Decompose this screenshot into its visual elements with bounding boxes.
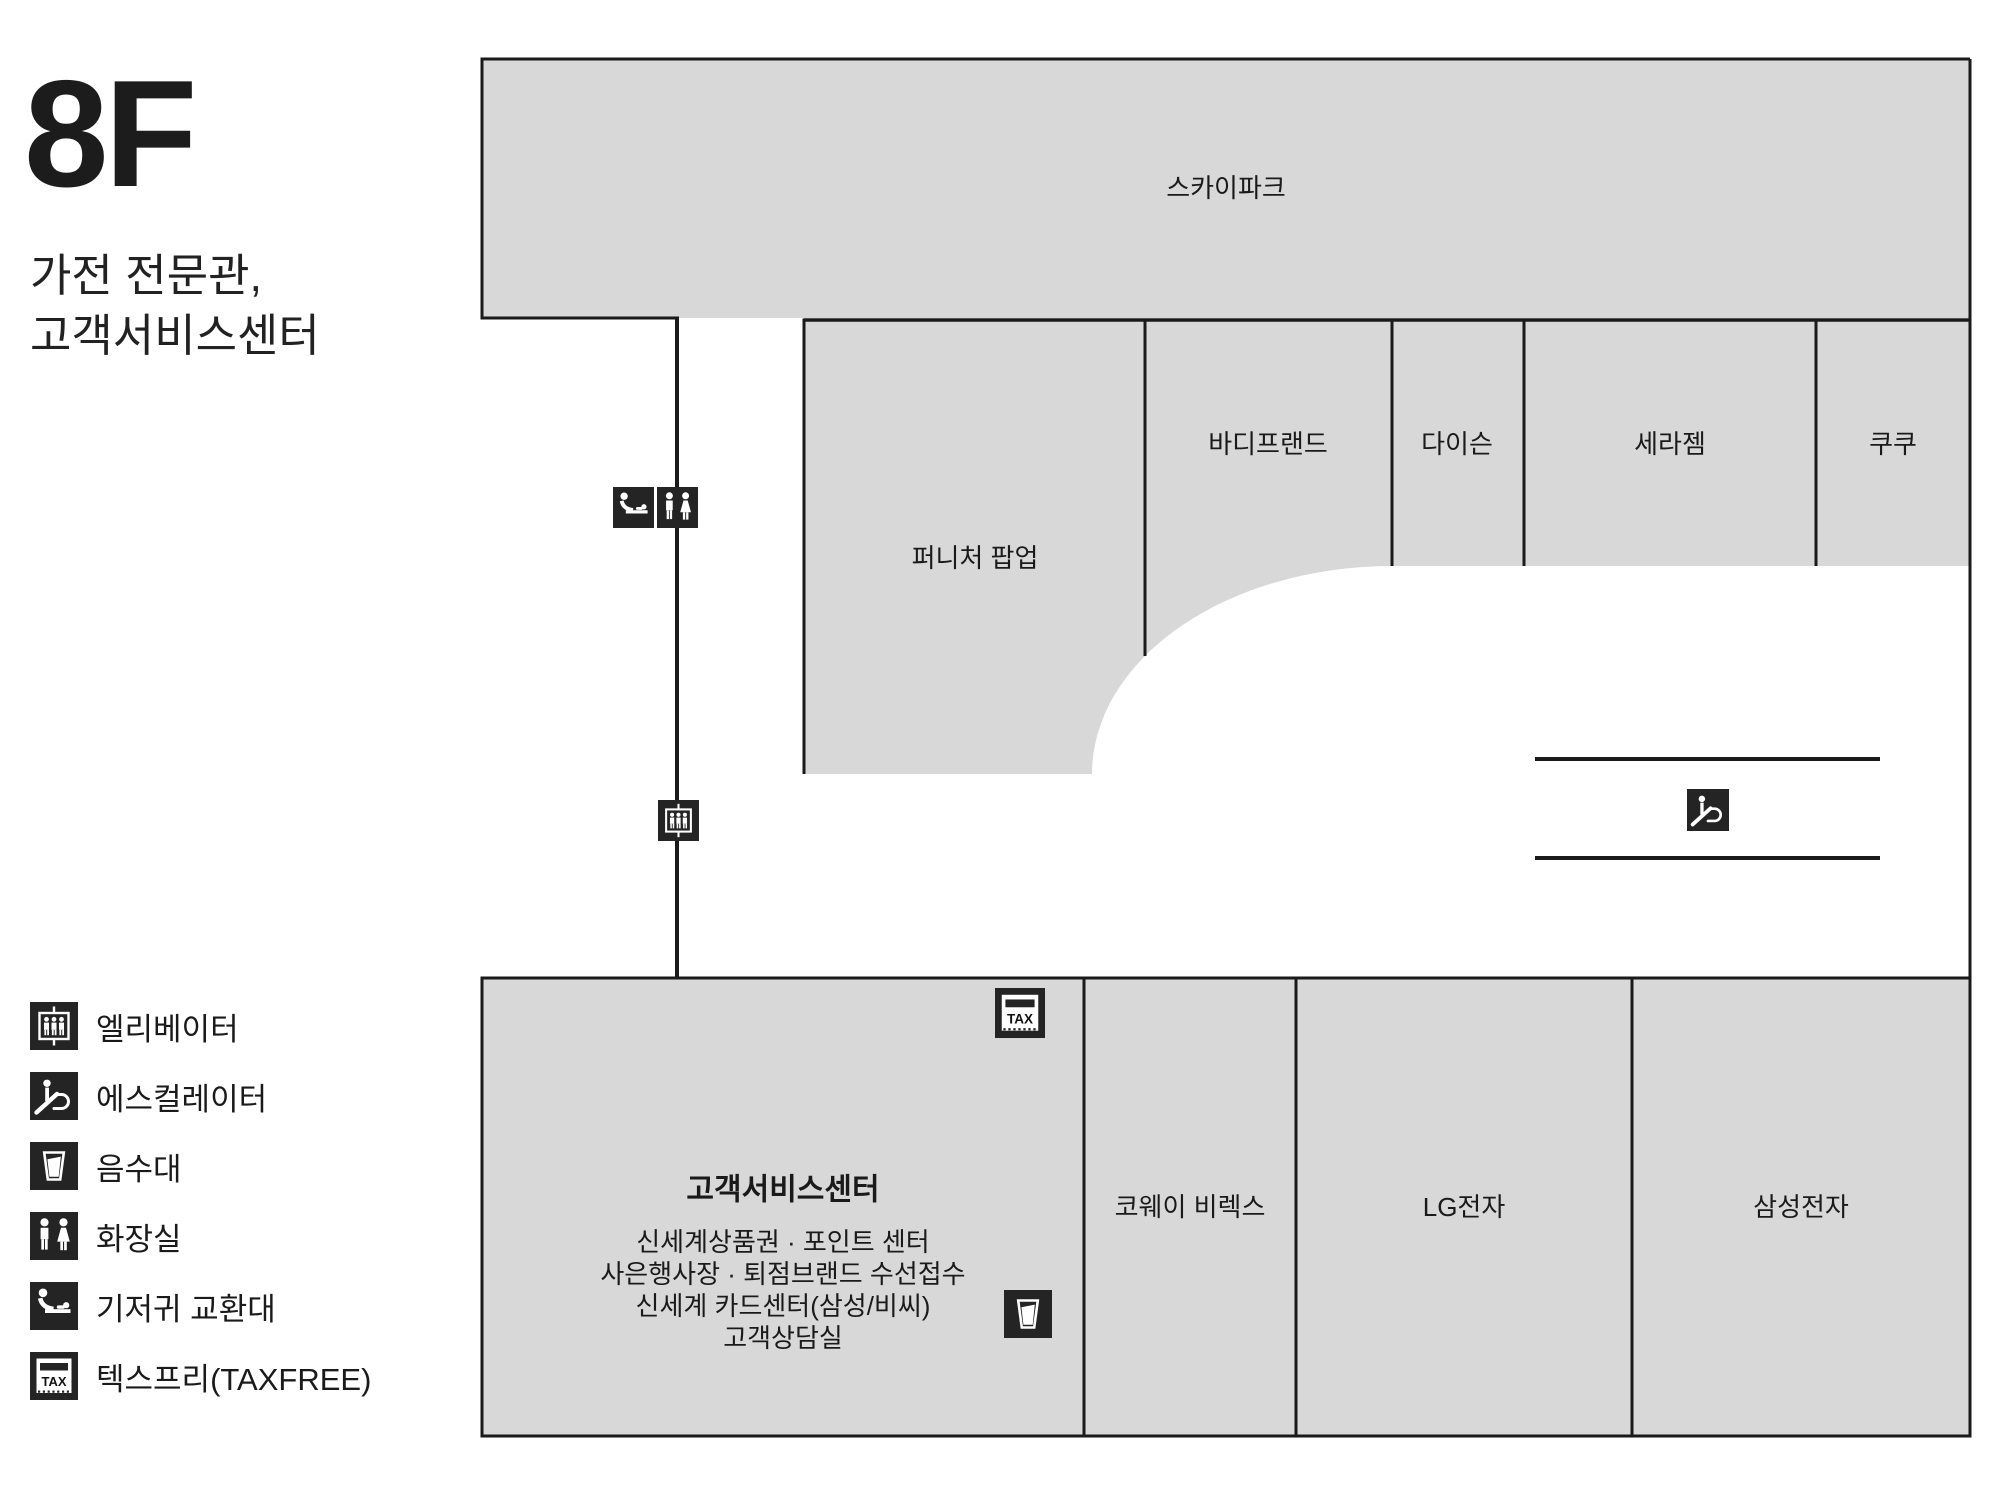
- service-center-line-1: 신세계상품권 · 포인트 센터: [636, 1227, 929, 1257]
- area-lg-label: LG전자: [1423, 1192, 1506, 1222]
- area-cuckoo-label: 쿠쿠: [1869, 429, 1917, 459]
- map-legend: 엘리베이터 에스컬레이터 음수대 화장실 기저귀 교환대 텍스프리(TAXFRE…: [30, 0, 530, 1500]
- legend-item-elevator: 엘리베이터: [30, 1002, 239, 1050]
- area-bodyfriend-label: 바디프랜드: [1208, 429, 1328, 459]
- legend-item-escalator: 에스컬레이터: [30, 1072, 267, 1120]
- restroom-icon: [30, 1212, 78, 1260]
- legend-label-elevator: 엘리베이터: [96, 1004, 239, 1049]
- area-upper-store-row: 퍼니처 팝업 바디프랜드 다이슨 세라젬 쿠쿠: [804, 320, 1970, 774]
- legend-label-restroom: 화장실: [96, 1214, 182, 1259]
- area-skypark: 스카이파크: [482, 59, 1970, 318]
- legend-item-restroom: 화장실: [30, 1212, 182, 1260]
- diaper-station-icon: [613, 487, 654, 528]
- area-furniture-popup-label: 퍼니처 팝업: [912, 543, 1039, 573]
- area-skypark-label: 스카이파크: [1166, 173, 1286, 203]
- diaper-station-icon: [30, 1282, 78, 1330]
- escalator-icon: [30, 1072, 78, 1120]
- area-coway-birex-label: 코웨이 비렉스: [1115, 1192, 1266, 1222]
- floor-guide-page: 8F 가전 전문관, 고객서비스센터: [0, 0, 2000, 1500]
- taxfree-icon: [995, 988, 1045, 1038]
- drinking-fountain-icon: [30, 1142, 78, 1190]
- taxfree-icon: [30, 1352, 78, 1400]
- area-service-center-title: 고객서비스센터: [686, 1174, 879, 1207]
- area-dyson-label: 다이슨: [1421, 429, 1493, 459]
- legend-label-drinking-fountain: 음수대: [96, 1144, 182, 1189]
- escalator-icon: [1687, 789, 1729, 831]
- legend-item-diaper-station: 기저귀 교환대: [30, 1282, 276, 1330]
- service-center-line-2: 사은행사장 · 퇴점브랜드 수선접수: [600, 1259, 965, 1289]
- service-center-line-3: 신세계 카드센터(삼성/비씨): [636, 1291, 931, 1321]
- legend-label-taxfree: 텍스프리(TAXFREE): [96, 1354, 371, 1399]
- elevator-icon: [658, 800, 699, 841]
- legend-item-drinking-fountain: 음수대: [30, 1142, 182, 1190]
- area-bottom-row: 고객서비스센터 신세계상품권 · 포인트 센터 사은행사장 · 퇴점브랜드 수선…: [482, 978, 1970, 1436]
- elevator-icon: [30, 1002, 78, 1050]
- area-ceragem-label: 세라젬: [1634, 429, 1706, 459]
- service-center-line-4: 고객상담실: [723, 1323, 843, 1353]
- area-samsung-label: 삼성전자: [1753, 1192, 1849, 1222]
- restroom-icon: [657, 487, 698, 528]
- legend-label-escalator: 에스컬레이터: [96, 1074, 267, 1119]
- legend-label-diaper-station: 기저귀 교환대: [96, 1284, 276, 1329]
- legend-item-taxfree: 텍스프리(TAXFREE): [30, 1352, 371, 1400]
- drinking-fountain-icon: [1004, 1290, 1052, 1338]
